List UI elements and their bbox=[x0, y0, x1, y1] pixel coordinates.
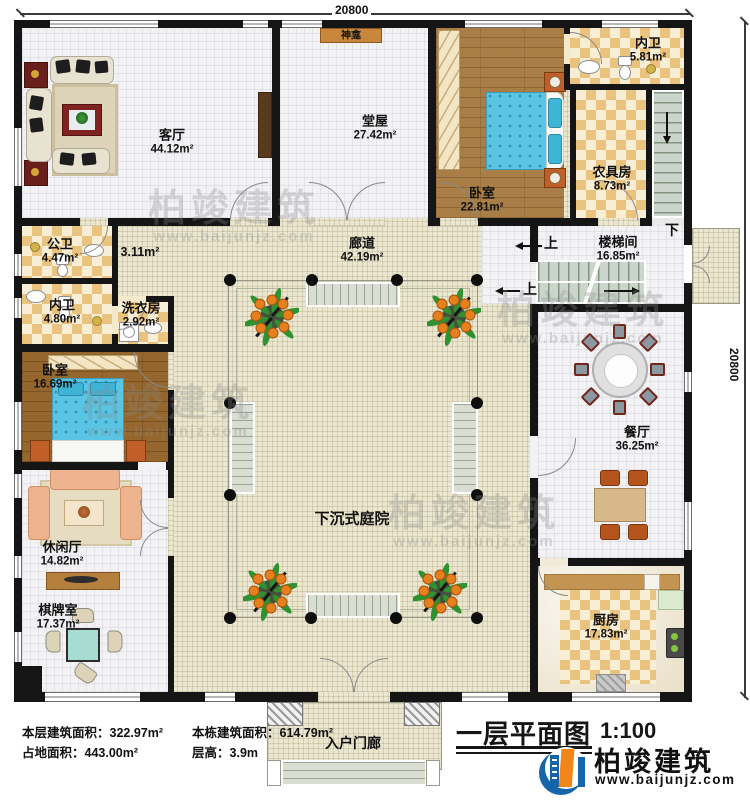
bed-mattress bbox=[486, 92, 548, 170]
window bbox=[602, 20, 658, 28]
room-label-dining: 餐厅36.25m² bbox=[616, 425, 659, 452]
chess-chair bbox=[46, 631, 61, 653]
potted-plant bbox=[243, 563, 297, 621]
wall-hall-bedroom bbox=[428, 28, 436, 226]
room-label-bedroom-left: 卧室16.69m² bbox=[34, 363, 77, 390]
stair-down-label: 下 bbox=[665, 220, 679, 240]
window bbox=[684, 502, 692, 550]
wall-bath-divider bbox=[22, 278, 112, 284]
tv-cabinet bbox=[258, 92, 272, 158]
door-opening bbox=[168, 498, 174, 556]
column bbox=[391, 274, 403, 286]
cabinet-decor-icon bbox=[31, 168, 39, 176]
stat-site-area: 占地面积：443.00m² bbox=[22, 742, 138, 761]
dining-chair bbox=[613, 400, 626, 415]
sofa-cushion bbox=[59, 152, 74, 166]
room-label-porch: 入户门廊 bbox=[325, 736, 381, 752]
potted-plant bbox=[413, 563, 467, 621]
room-label-courtyard: 下沉式庭院 bbox=[314, 512, 389, 529]
table-plant-icon bbox=[76, 112, 88, 124]
wall-outer-right bbox=[684, 20, 692, 702]
window bbox=[14, 128, 22, 186]
pillow bbox=[548, 98, 562, 128]
door-opening bbox=[540, 558, 568, 566]
stair-arrow-line bbox=[666, 112, 668, 136]
floor-drain-icon bbox=[646, 64, 656, 74]
leisure-sofa-left bbox=[28, 486, 50, 540]
room-label-stairwell: 楼梯间16.85m² bbox=[597, 235, 640, 262]
potted-plant bbox=[427, 288, 481, 346]
room-label-passage: 3.11m² bbox=[121, 245, 160, 259]
column bbox=[471, 274, 483, 286]
dimension-right-value: 20800 bbox=[727, 345, 741, 384]
burner-icon bbox=[671, 633, 678, 640]
dimension-line-right bbox=[744, 22, 746, 698]
column bbox=[224, 612, 236, 624]
nightstand-lamp-icon bbox=[549, 172, 561, 184]
wall-dining-left bbox=[530, 304, 538, 558]
stair-arrow-down-icon bbox=[663, 136, 671, 144]
room-label-farm-tool: 农具房8.73m² bbox=[592, 165, 631, 192]
wall-stair-stub bbox=[530, 218, 538, 262]
window bbox=[14, 632, 22, 662]
dimension-top-value: 20800 bbox=[332, 3, 371, 17]
courtyard-steps-top bbox=[306, 282, 400, 307]
courtyard-steps-left bbox=[230, 402, 255, 494]
dining-chair bbox=[574, 363, 589, 376]
potted-plant bbox=[245, 288, 299, 346]
window bbox=[282, 20, 322, 28]
wall-outer-left bbox=[14, 20, 22, 702]
door-opening bbox=[684, 245, 692, 283]
stat-floor-height: 层高：3.9m bbox=[192, 742, 258, 761]
column bbox=[224, 274, 236, 286]
column bbox=[471, 489, 483, 501]
sofa-cushion bbox=[75, 59, 90, 73]
porch-steps bbox=[281, 760, 427, 786]
stairs-upper-right bbox=[652, 90, 684, 218]
sofa-cushion bbox=[95, 60, 109, 73]
leisure-sofa-right bbox=[120, 486, 142, 540]
logo-website: www.baijunjz.com bbox=[595, 772, 736, 787]
floor-drain-icon bbox=[30, 242, 40, 252]
floor-drain-icon bbox=[92, 316, 102, 326]
sofa-cushion bbox=[55, 59, 71, 74]
wall-farmtool-right bbox=[646, 90, 652, 218]
window bbox=[14, 298, 22, 318]
window bbox=[465, 20, 542, 28]
room-label-hall: 堂屋27.42m² bbox=[354, 114, 397, 141]
burner-icon bbox=[671, 645, 678, 652]
room-label-laundry: 洗衣房2.92m² bbox=[121, 301, 160, 328]
cabinet-decor-icon bbox=[31, 70, 39, 78]
wall-corner-block bbox=[14, 666, 42, 694]
door-opening bbox=[80, 218, 108, 226]
stair-arrow-right-icon bbox=[632, 287, 640, 295]
window bbox=[14, 556, 22, 578]
nightstand bbox=[126, 440, 146, 462]
square-table bbox=[594, 488, 646, 522]
kitchen-counter-gap bbox=[644, 574, 660, 590]
window bbox=[243, 20, 268, 28]
porch-step-rail bbox=[426, 760, 440, 786]
wall-kitchen-left bbox=[530, 566, 538, 692]
bed-sheet bbox=[52, 440, 124, 462]
chess-chair bbox=[108, 631, 123, 653]
nightstand bbox=[30, 440, 50, 462]
stair-up-label: 上 bbox=[523, 279, 537, 299]
mahjong-table bbox=[66, 628, 100, 662]
table-chair bbox=[600, 524, 620, 540]
table-chair bbox=[600, 470, 620, 486]
window bbox=[572, 692, 660, 702]
leisure-sofa-top bbox=[50, 468, 120, 490]
pillow bbox=[548, 134, 562, 164]
toilet-icon bbox=[57, 264, 68, 277]
window bbox=[45, 692, 140, 702]
stair-arrow-line bbox=[522, 245, 542, 247]
porch-step-rail bbox=[267, 760, 281, 786]
column bbox=[224, 397, 236, 409]
courtyard-steps-right bbox=[452, 402, 478, 494]
stair-arrow-left-icon bbox=[515, 242, 523, 250]
window bbox=[205, 692, 235, 702]
window bbox=[14, 254, 22, 276]
window bbox=[462, 692, 508, 702]
room-label-living: 客厅44.12m² bbox=[151, 128, 194, 155]
room-label-chess: 棋牌室17.37m² bbox=[37, 603, 80, 630]
sofa-cushion bbox=[29, 117, 44, 132]
column bbox=[471, 397, 483, 409]
room-label-public-bath: 公卫4.47m² bbox=[42, 237, 78, 264]
table-chair bbox=[628, 524, 648, 540]
courtyard-steps-bottom bbox=[306, 593, 400, 618]
tv-icon bbox=[64, 576, 98, 583]
pillow bbox=[90, 382, 116, 396]
column bbox=[306, 274, 318, 286]
room-label-corridor: 廊道42.19m² bbox=[341, 236, 384, 263]
stair-arrow-left-icon bbox=[495, 287, 503, 295]
toilet-icon bbox=[619, 65, 631, 80]
door-opening bbox=[530, 436, 538, 478]
wall-stairwell-dining bbox=[536, 304, 684, 312]
door-opening bbox=[138, 462, 166, 470]
room-label-bedroom-top: 卧室22.81m² bbox=[461, 186, 504, 213]
porch-door-opening bbox=[318, 692, 390, 702]
stair-up-label: 上 bbox=[544, 233, 558, 253]
floor-plan-canvas: 神龛 bbox=[0, 0, 750, 803]
kitchen-sink-icon bbox=[596, 674, 626, 692]
wardrobe bbox=[438, 30, 460, 170]
stair-arrow-line bbox=[502, 290, 520, 292]
window bbox=[50, 20, 158, 28]
column bbox=[224, 489, 236, 501]
shrine-label: 神龛 bbox=[341, 30, 361, 41]
stat-floor-area: 本层建筑面积：322.97m² bbox=[22, 722, 163, 741]
column bbox=[390, 612, 402, 624]
dining-chair bbox=[650, 363, 665, 376]
kitchen-counter-item bbox=[658, 590, 684, 610]
window bbox=[14, 474, 22, 498]
wall-living-hall bbox=[272, 28, 280, 226]
dining-table-center bbox=[604, 354, 638, 388]
column bbox=[471, 612, 483, 624]
window bbox=[684, 372, 692, 392]
leisure-table-decor-icon bbox=[78, 506, 90, 518]
column bbox=[305, 612, 317, 624]
room-label-leisure: 休闲厅14.82m² bbox=[41, 540, 84, 567]
sofa-cushion bbox=[81, 152, 96, 165]
logo-icon bbox=[535, 740, 591, 798]
stat-building-area: 本栋建筑面积：614.79m² bbox=[192, 722, 333, 741]
dining-chair bbox=[613, 324, 626, 339]
wall-farmtool-left bbox=[570, 90, 576, 218]
wall-bath-bottom bbox=[570, 84, 684, 90]
table-chair bbox=[628, 470, 648, 486]
sofa-cushion bbox=[29, 95, 44, 111]
stair-arrow-line bbox=[604, 290, 632, 292]
wall-bedroom-left-top bbox=[14, 344, 174, 352]
porch-pier bbox=[404, 702, 440, 726]
window bbox=[14, 402, 22, 450]
nightstand-lamp-icon bbox=[549, 76, 561, 88]
room-label-ensuite-top: 内卫5.81m² bbox=[630, 36, 666, 63]
room-label-kitchen: 厨房17.83m² bbox=[585, 613, 628, 640]
room-label-ensuite-left: 内卫4.80m² bbox=[44, 298, 80, 325]
